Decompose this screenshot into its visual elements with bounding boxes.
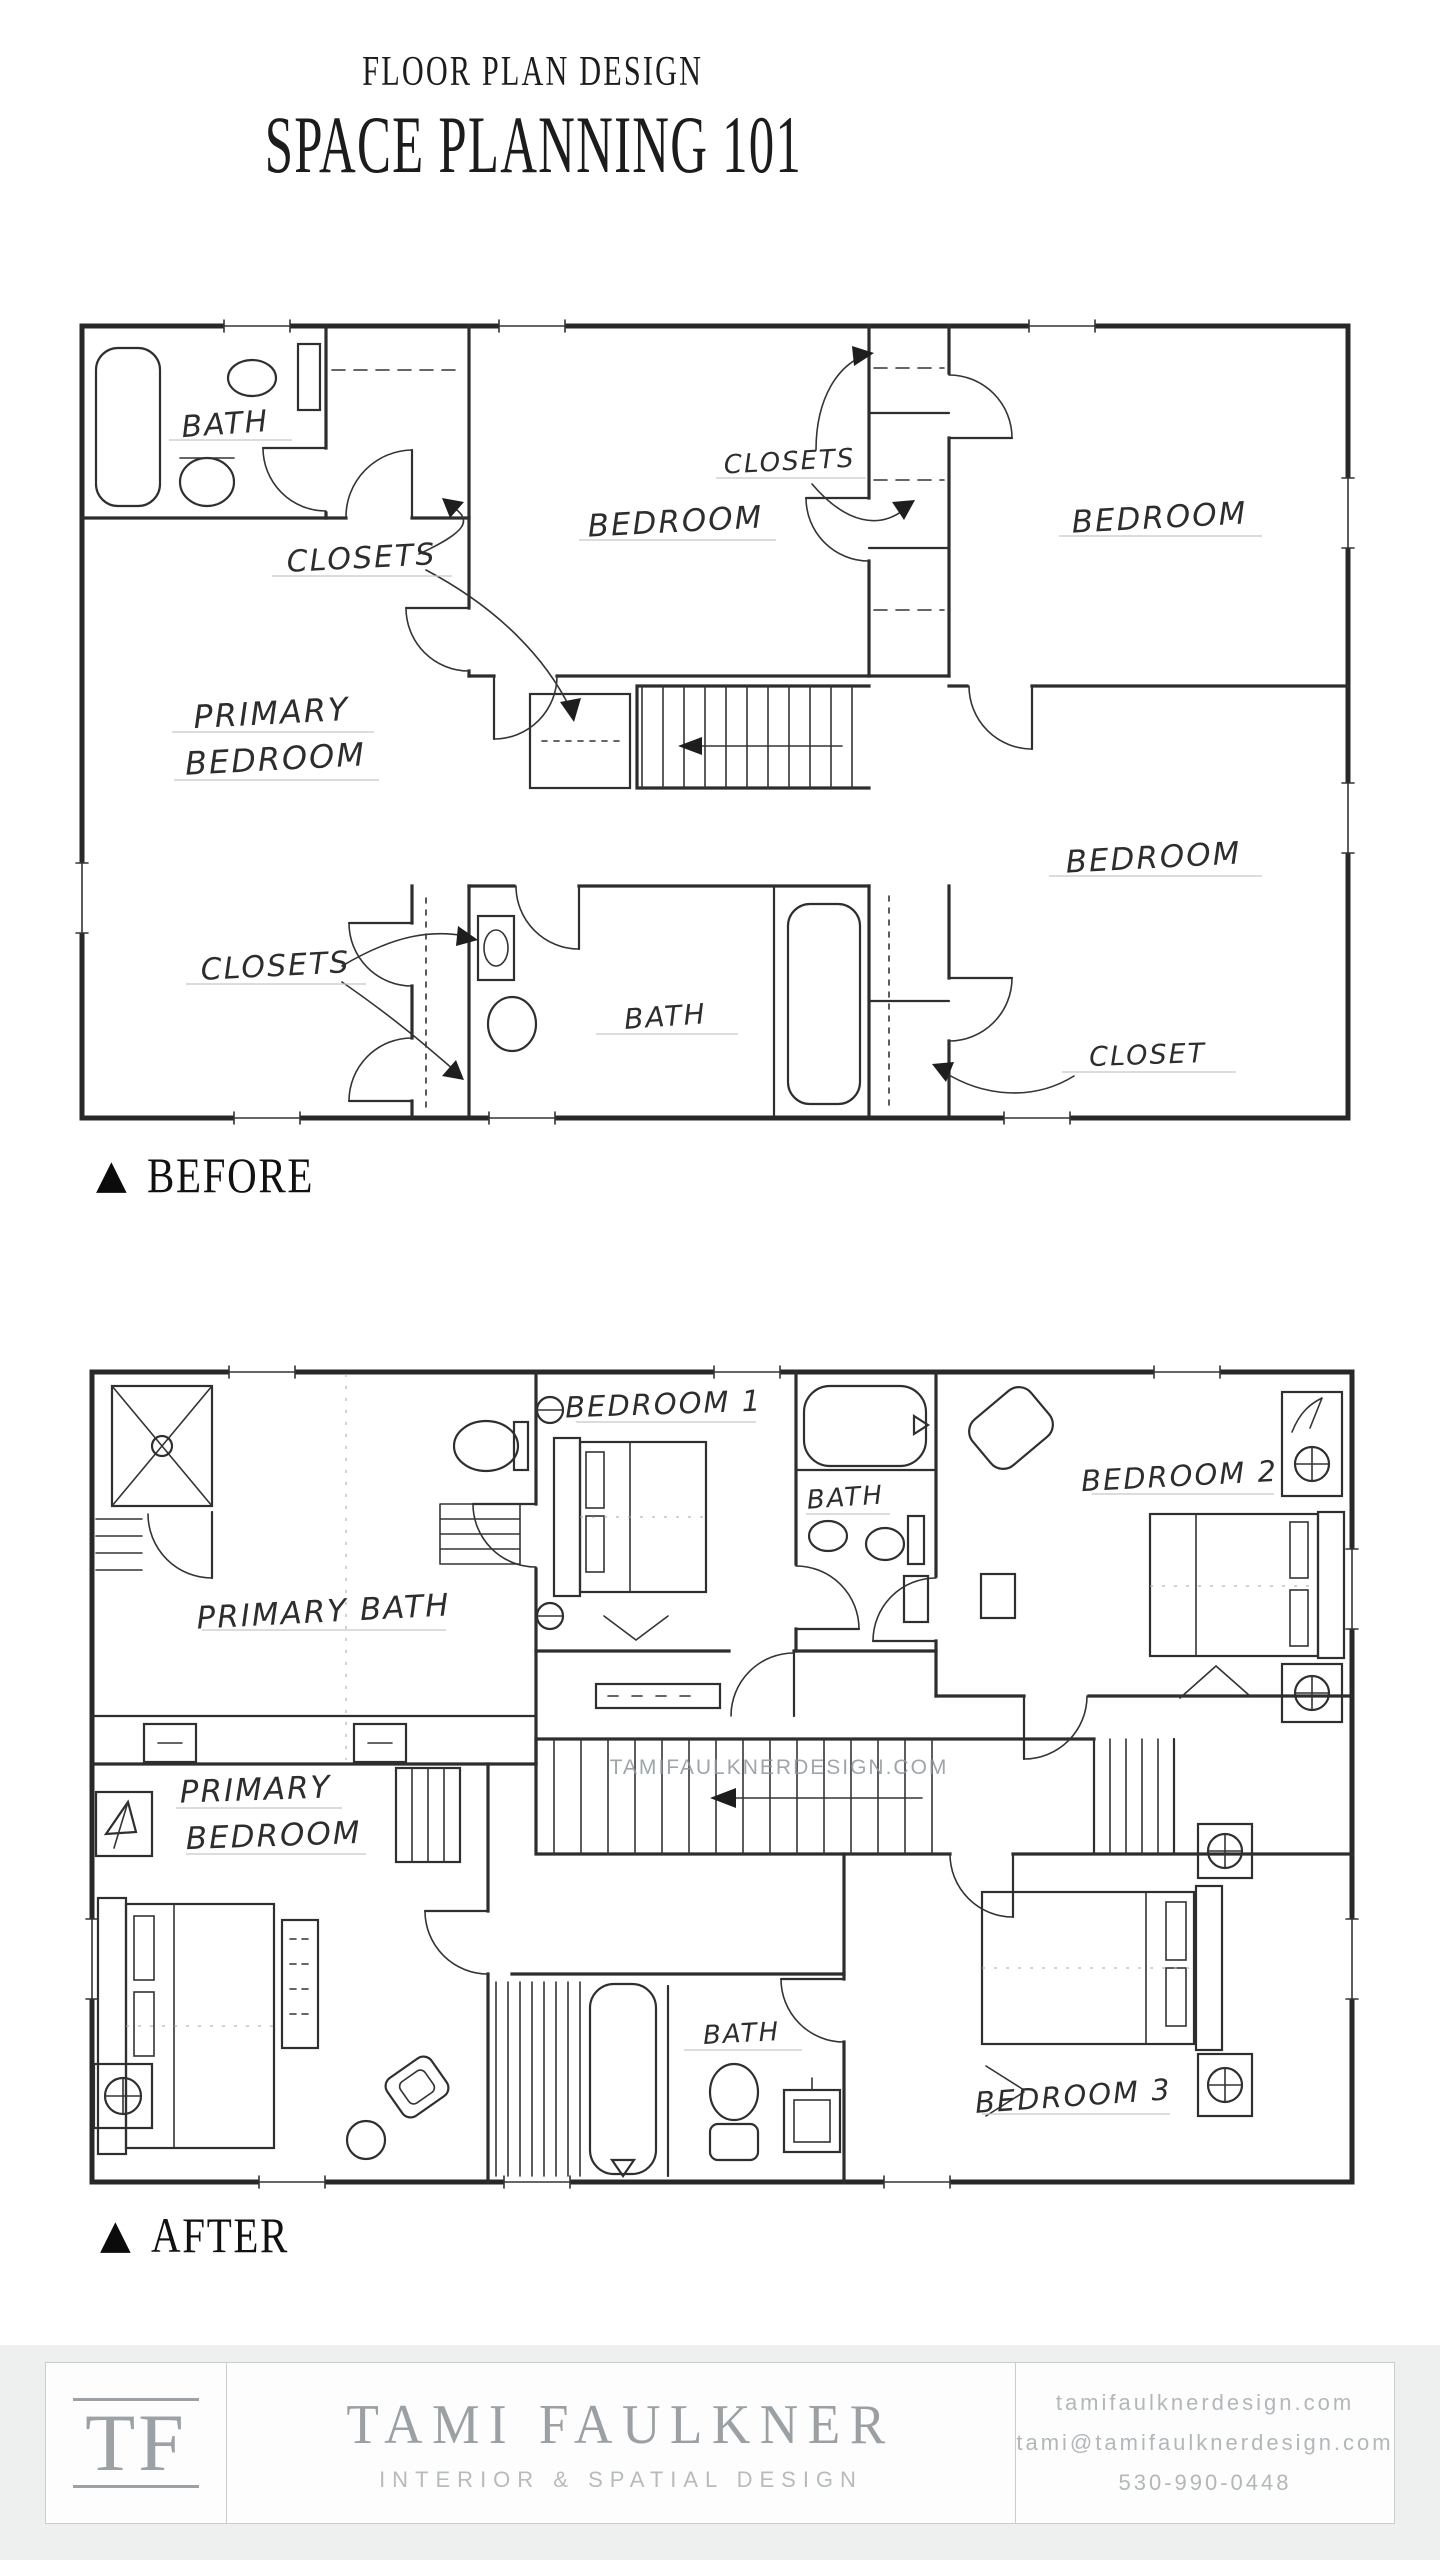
before-label-bedroom-top-middle: BEDROOM bbox=[587, 499, 764, 544]
before-caption: ▲ BEFORE bbox=[96, 1146, 350, 1204]
before-label-bath-top: BATH bbox=[180, 404, 270, 445]
brand-tagline: INTERIOR & SPATIAL DESIGN bbox=[379, 2467, 863, 2493]
before-label-closet-bottom-right: CLOSET bbox=[1089, 1038, 1208, 1073]
after-label-bath-top: BATH bbox=[806, 1480, 885, 1515]
before-label-closets-center: CLOSETS bbox=[723, 444, 856, 481]
after-floor-plan: PRIMARY BATH BEDROOM 1 BATH BEDROOM 2 PR… bbox=[84, 1364, 1360, 2190]
footer-logo-cell: TF bbox=[46, 2363, 227, 2523]
watermark-text: TAMIFAULKNERDESIGN.COM bbox=[610, 1756, 949, 1779]
page-title-text: SPACE PLANNING 101 bbox=[264, 98, 801, 192]
before-annotation-arrows bbox=[342, 346, 1074, 1093]
page-title: SPACE PLANNING 101 bbox=[0, 98, 1066, 192]
after-label-bath-bottom: BATH bbox=[702, 2017, 781, 2051]
before-label-bath-bottom: BATH bbox=[623, 997, 708, 1036]
after-label-primary-bath: PRIMARY BATH bbox=[196, 1587, 452, 1636]
footer-contact-cell: tamifaulknerdesign.com tami@tamifaulkner… bbox=[1015, 2363, 1394, 2523]
before-doors bbox=[263, 375, 1032, 1101]
before-label-closets-top-left: CLOSETS bbox=[286, 537, 437, 580]
before-label-closets-bottom: CLOSETS bbox=[200, 945, 351, 988]
after-label-primary-1: PRIMARY bbox=[179, 1769, 332, 1810]
poster-page: FLOOR PLAN DESIGN SPACE PLANNING 101 bbox=[0, 0, 1440, 2560]
contact-phone: 530-990-0448 bbox=[1118, 2470, 1291, 2496]
after-bedroom1-furniture bbox=[537, 1397, 720, 1708]
after-label-bedroom3: BEDROOM 3 bbox=[974, 2072, 1173, 2120]
after-triangle-icon: ▲ bbox=[100, 2215, 131, 2255]
footer-card: TF TAMI FAULKNER INTERIOR & SPATIAL DESI… bbox=[45, 2362, 1395, 2524]
contact-email[interactable]: tami@tamifaulknerdesign.com bbox=[1016, 2430, 1393, 2456]
before-label-primary-1: PRIMARY bbox=[192, 690, 350, 736]
before-triangle-icon: ▲ bbox=[96, 1155, 127, 1195]
contact-website[interactable]: tamifaulknerdesign.com bbox=[1056, 2390, 1354, 2416]
after-label-bedroom1: BEDROOM 1 bbox=[565, 1384, 763, 1425]
before-label-bedroom-bottom-right: BEDROOM bbox=[1065, 835, 1242, 880]
before-floor-plan: BATH CLOSETS BEDROOM CLOSETS BEDROOM PRI… bbox=[74, 318, 1356, 1126]
before-label-bedroom-top-right: BEDROOM bbox=[1071, 495, 1248, 540]
after-bedroom3-furniture bbox=[982, 1824, 1252, 2116]
after-label-primary-2: BEDROOM bbox=[185, 1815, 362, 1857]
after-caption-text: AFTER bbox=[151, 2206, 289, 2264]
tf-logo: TF bbox=[85, 2401, 187, 2485]
logo-rule-bottom bbox=[73, 2485, 199, 2488]
before-label-primary-2: BEDROOM bbox=[184, 735, 367, 782]
after-label-bedroom2: BEDROOM 2 bbox=[1080, 1454, 1279, 1498]
after-caption: ▲ AFTER bbox=[100, 2206, 319, 2264]
header-kicker: FLOOR PLAN DESIGN bbox=[363, 48, 704, 96]
brand-name: TAMI FAULKNER bbox=[347, 2393, 895, 2457]
footer-brand-cell: TAMI FAULKNER INTERIOR & SPATIAL DESIGN bbox=[227, 2363, 1015, 2523]
after-bedroom2-furniture bbox=[963, 1381, 1344, 1722]
page-header: FLOOR PLAN DESIGN SPACE PLANNING 101 bbox=[0, 48, 1066, 192]
before-caption-text: BEFORE bbox=[147, 1146, 314, 1204]
